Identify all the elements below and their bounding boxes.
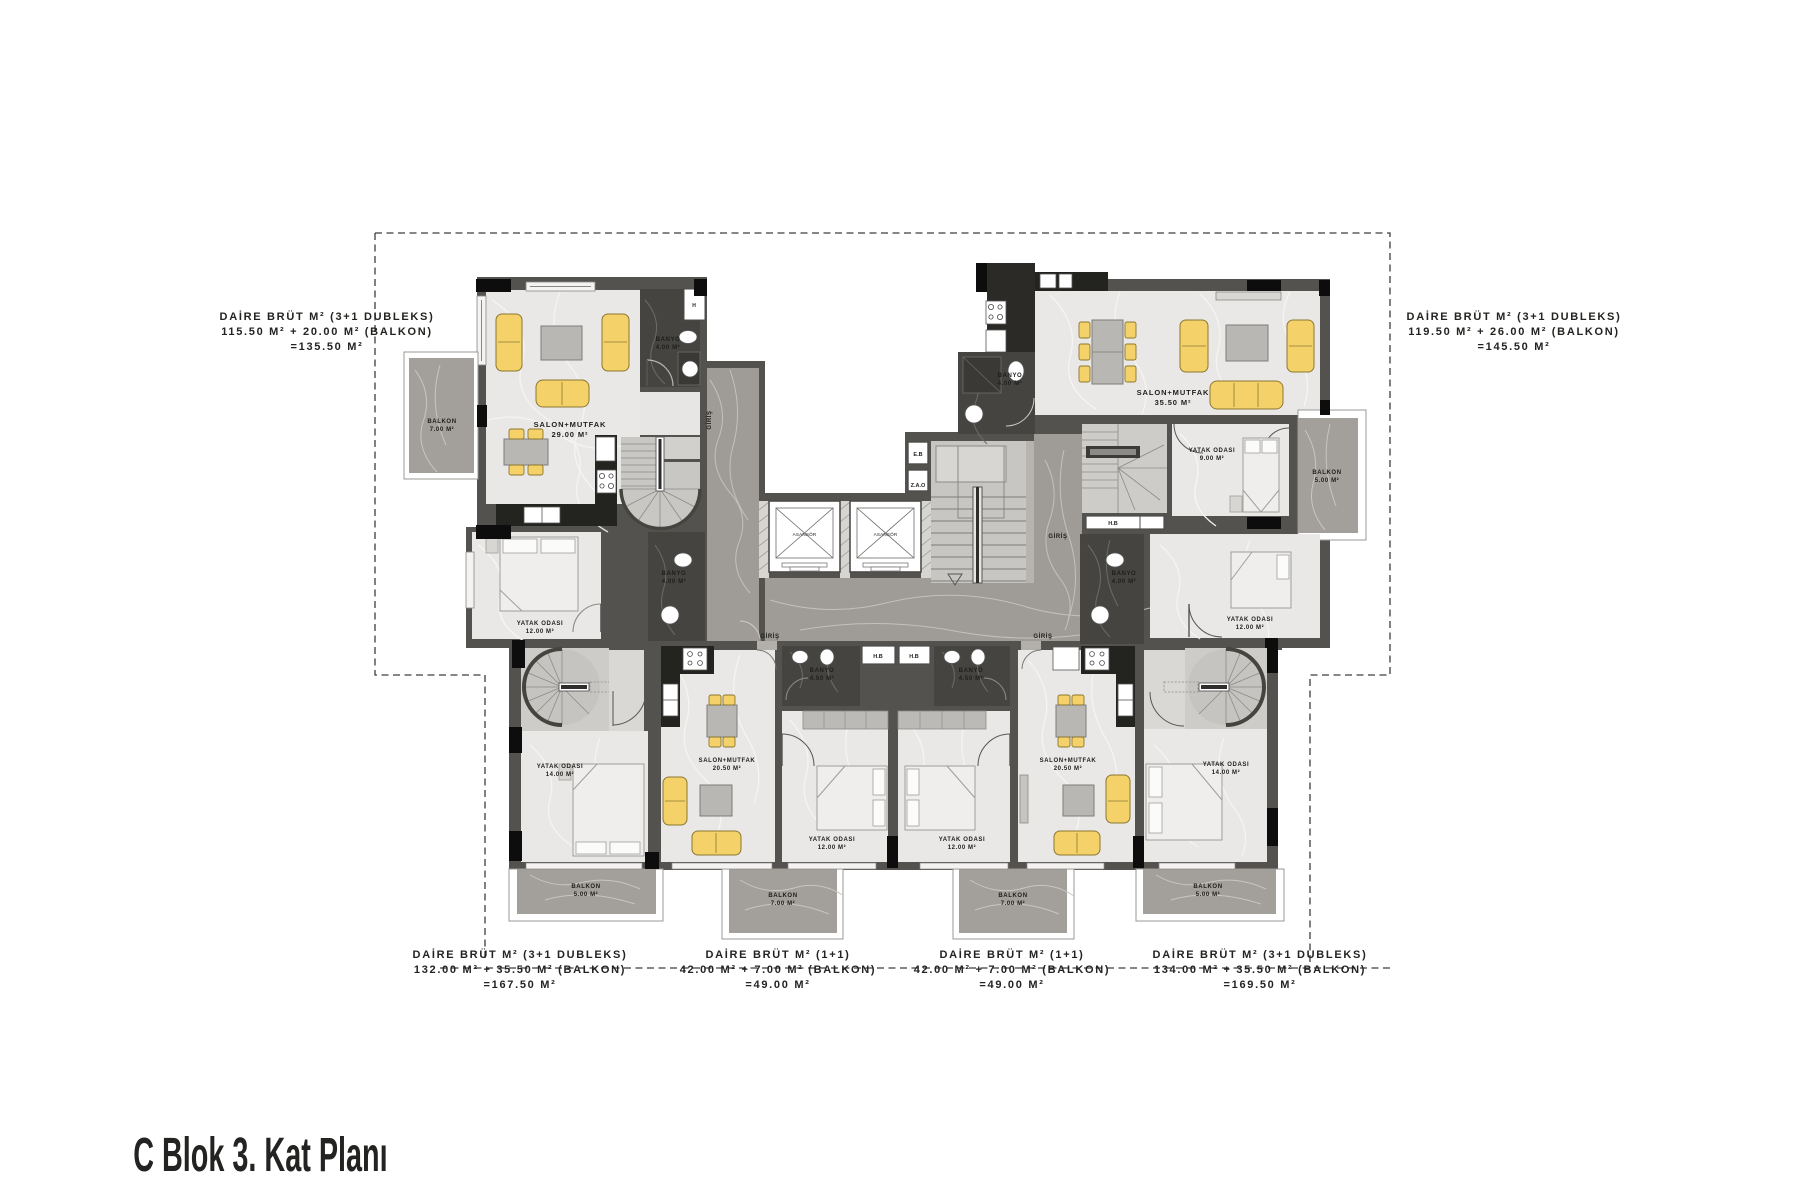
svg-text:BALKON: BALKON <box>998 893 1027 899</box>
svg-text:4.00 M²: 4.00 M² <box>998 380 1023 387</box>
svg-text:H: H <box>692 303 696 309</box>
svg-text:Z.A.O: Z.A.O <box>911 483 926 489</box>
svg-text:DAİRE BRÜT M² (3+1 DUBLEKS): DAİRE BRÜT M² (3+1 DUBLEKS) <box>413 948 628 961</box>
svg-text:42.00 M² + 7.00 M² (BALKON): 42.00 M² + 7.00 M² (BALKON) <box>680 964 877 976</box>
svg-text:=135.50 M²: =135.50 M² <box>291 341 364 353</box>
svg-text:7.00 M²: 7.00 M² <box>430 426 455 433</box>
svg-text:5.00 M²: 5.00 M² <box>1196 891 1221 898</box>
svg-text:DAİRE BRÜT M² (1+1): DAİRE BRÜT M² (1+1) <box>705 948 850 961</box>
svg-text:=169.50 M²: =169.50 M² <box>1224 979 1297 991</box>
svg-text:SALON+MUTFAK: SALON+MUTFAK <box>699 758 756 764</box>
svg-text:=167.50 M²: =167.50 M² <box>484 979 557 991</box>
svg-text:SALON+MUTFAK: SALON+MUTFAK <box>1040 758 1097 764</box>
svg-text:14.00 M²: 14.00 M² <box>1212 769 1240 776</box>
svg-text:DAİRE BRÜT M² (1+1): DAİRE BRÜT M² (1+1) <box>939 948 1084 961</box>
svg-text:BANYO: BANYO <box>1112 571 1137 577</box>
svg-text:7.00 M²: 7.00 M² <box>771 900 796 907</box>
svg-text:GİRİŞ: GİRİŞ <box>760 633 779 640</box>
svg-text:BALKON: BALKON <box>1312 470 1341 476</box>
svg-text:=49.00 M²: =49.00 M² <box>979 979 1044 991</box>
svg-text:4.00 M²: 4.00 M² <box>656 344 681 351</box>
svg-text:GİRİŞ: GİRİŞ <box>1048 533 1067 540</box>
svg-text:YATAK ODASI: YATAK ODASI <box>537 764 584 770</box>
svg-text:4.00 M²: 4.00 M² <box>1112 578 1137 585</box>
svg-text:YATAK ODASI: YATAK ODASI <box>1203 762 1250 768</box>
svg-text:YATAK ODASI: YATAK ODASI <box>939 837 986 843</box>
svg-text:4.00 M²: 4.00 M² <box>662 578 687 585</box>
svg-text:4.50 M²: 4.50 M² <box>810 675 835 682</box>
svg-text:SALON+MUTFAK: SALON+MUTFAK <box>1137 388 1210 397</box>
svg-text:BANYO: BANYO <box>662 571 687 577</box>
svg-text:42.00 M² + 7.00 M² (BALKON): 42.00 M² + 7.00 M² (BALKON) <box>914 964 1111 976</box>
svg-text:9.00 M²: 9.00 M² <box>1200 455 1225 462</box>
svg-text:E.B: E.B <box>913 452 922 458</box>
svg-text:20.50 M²: 20.50 M² <box>1054 765 1082 772</box>
svg-text:GİRİŞ: GİRİŞ <box>706 410 713 429</box>
svg-text:YATAK ODASI: YATAK ODASI <box>1227 617 1274 623</box>
svg-text:20.50 M²: 20.50 M² <box>713 765 741 772</box>
svg-text:DAİRE BRÜT M² (3+1 DUBLEKS): DAİRE BRÜT M² (3+1 DUBLEKS) <box>220 310 435 323</box>
svg-text:12.00 M²: 12.00 M² <box>1236 624 1264 631</box>
svg-text:=49.00 M²: =49.00 M² <box>745 979 810 991</box>
svg-text:119.50 M² + 26.00 M² (BALKON): 119.50 M² + 26.00 M² (BALKON) <box>1408 326 1620 338</box>
svg-text:=145.50 M²: =145.50 M² <box>1478 341 1551 353</box>
svg-text:7.00 M²: 7.00 M² <box>1001 900 1026 907</box>
svg-text:12.00 M²: 12.00 M² <box>526 628 554 635</box>
svg-text:ASANSÖR: ASANSÖR <box>793 531 817 537</box>
svg-text:YATAK ODASI: YATAK ODASI <box>517 621 564 627</box>
svg-text:132.00 M² + 35.50 M² (BALKON): 132.00 M² + 35.50 M² (BALKON) <box>414 964 626 976</box>
svg-text:12.00 M²: 12.00 M² <box>818 844 846 851</box>
svg-text:BALKON: BALKON <box>571 884 600 890</box>
svg-text:DAİRE BRÜT M² (3+1 DUBLEKS): DAİRE BRÜT M² (3+1 DUBLEKS) <box>1407 310 1622 323</box>
svg-text:134.00 M² + 35.50 M² (BALKON): 134.00 M² + 35.50 M² (BALKON) <box>1154 964 1366 976</box>
svg-text:12.00 M²: 12.00 M² <box>948 844 976 851</box>
svg-text:5.00 M²: 5.00 M² <box>1315 477 1340 484</box>
svg-text:ASANSÖR: ASANSÖR <box>874 531 898 537</box>
svg-text:BALKON: BALKON <box>427 419 456 425</box>
svg-text:YATAK ODASI: YATAK ODASI <box>1189 448 1236 454</box>
svg-text:BALKON: BALKON <box>768 893 797 899</box>
svg-text:BALKON: BALKON <box>1193 884 1222 890</box>
svg-text:BANYO: BANYO <box>810 668 835 674</box>
svg-text:YATAK ODASI: YATAK ODASI <box>809 837 856 843</box>
svg-text:C Blok 3. Kat Planı: C Blok 3. Kat Planı <box>133 1129 387 1182</box>
svg-text:BANYO: BANYO <box>959 668 984 674</box>
svg-text:GİRİŞ: GİRİŞ <box>1033 633 1052 640</box>
svg-text:29.00 M²: 29.00 M² <box>552 430 589 439</box>
svg-text:5.00 M²: 5.00 M² <box>574 891 599 898</box>
svg-text:H.B: H.B <box>1108 521 1118 527</box>
svg-text:14.00 M²: 14.00 M² <box>546 771 574 778</box>
svg-text:35.50 M²: 35.50 M² <box>1155 398 1192 407</box>
svg-text:DAİRE BRÜT M² (3+1 DUBLEKS): DAİRE BRÜT M² (3+1 DUBLEKS) <box>1153 948 1368 961</box>
svg-text:BANYO: BANYO <box>656 337 681 343</box>
svg-text:SALON+MUTFAK: SALON+MUTFAK <box>534 420 607 429</box>
svg-text:4.50 M²: 4.50 M² <box>959 675 984 682</box>
svg-text:115.50 M² + 20.00 M² (BALKON): 115.50 M² + 20.00 M² (BALKON) <box>221 326 433 338</box>
svg-text:H.B: H.B <box>909 654 919 660</box>
svg-text:H.B: H.B <box>873 654 883 660</box>
svg-text:BANYO: BANYO <box>998 373 1023 379</box>
